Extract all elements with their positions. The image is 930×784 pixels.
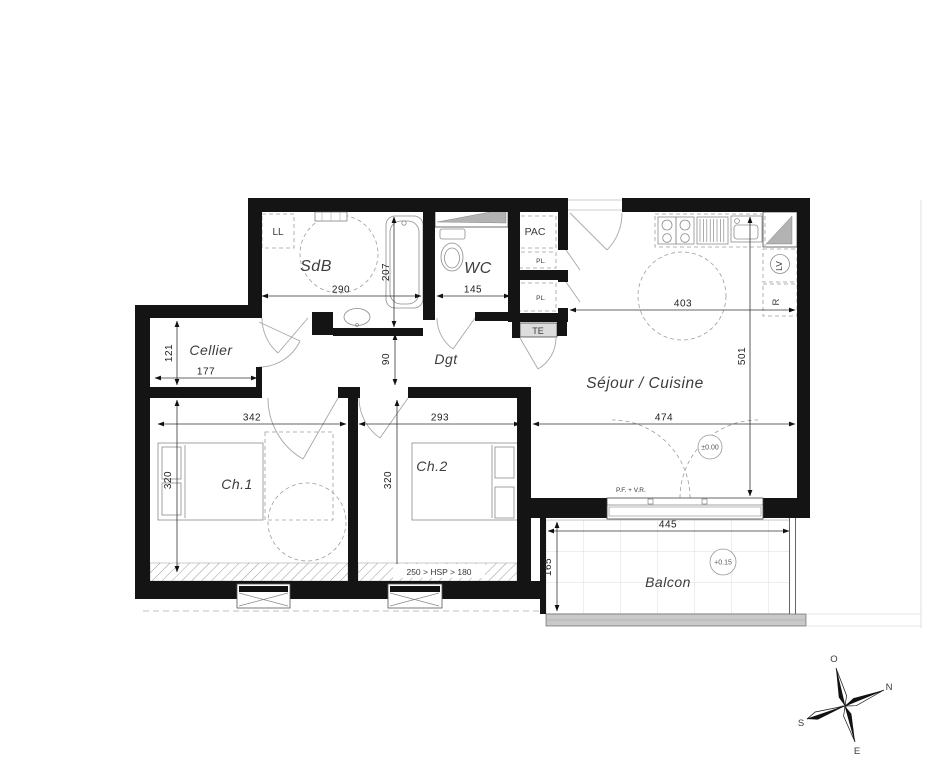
compass-south: S bbox=[798, 718, 804, 729]
dim-balcon-depth: 165 bbox=[543, 558, 554, 576]
floor-plan: 290 145 207 403 501 121 177 90 342 293 4… bbox=[0, 0, 930, 784]
room-label-ch1: Ch.1 bbox=[221, 476, 253, 492]
label-fridge: R bbox=[771, 298, 782, 305]
compass-north: N bbox=[886, 682, 893, 693]
dim-balcon-width: 445 bbox=[659, 520, 677, 531]
balcony-sliding-window bbox=[607, 498, 763, 519]
dim-wc-width: 145 bbox=[464, 285, 482, 296]
level-ground: ±0.00 bbox=[701, 445, 719, 452]
roof-window-ch2 bbox=[388, 584, 442, 608]
dim-cellier-width: 177 bbox=[197, 367, 215, 378]
dim-ch1-width: 342 bbox=[243, 413, 261, 424]
dim-kitchen-width: 403 bbox=[674, 299, 692, 310]
label-washing-machine: LL bbox=[272, 227, 284, 238]
dim-cellier-depth: 121 bbox=[164, 344, 175, 362]
dim-ch2-depth: 320 bbox=[383, 471, 394, 489]
label-pac: PAC bbox=[525, 226, 546, 238]
label-pl-lower: PL. bbox=[536, 295, 546, 302]
dim-sdb-width: 290 bbox=[332, 285, 350, 296]
room-label-ch2: Ch.2 bbox=[416, 458, 448, 474]
balcony-tiles bbox=[546, 520, 790, 614]
room-label-sdb: SdB bbox=[300, 258, 332, 275]
label-electrical-panel: TE bbox=[532, 326, 544, 336]
label-ceiling-height: 250 > HSP > 180 bbox=[406, 567, 471, 577]
dim-sejour-depth: 501 bbox=[737, 347, 748, 365]
room-label-wc: WC bbox=[464, 260, 492, 277]
label-window-type: P.F. + V.R. bbox=[616, 487, 646, 494]
dim-bath-length: 207 bbox=[381, 263, 392, 281]
compass-west: O bbox=[830, 654, 837, 665]
compass-east: E bbox=[854, 746, 860, 757]
roof-window-ch1 bbox=[237, 584, 290, 608]
dim-ch2-width: 293 bbox=[431, 413, 449, 424]
label-dishwasher: LV bbox=[774, 261, 784, 271]
dim-ch1-depth: 320 bbox=[163, 471, 174, 489]
dim-dgt-width: 90 bbox=[381, 353, 392, 365]
floor-plan-svg: 290 145 207 403 501 121 177 90 342 293 4… bbox=[0, 0, 930, 784]
level-balcony: +0.15 bbox=[714, 560, 732, 567]
room-label-cellier: Cellier bbox=[189, 342, 233, 358]
sdb-vent-window bbox=[315, 212, 347, 221]
room-label-sejour: Séjour / Cuisine bbox=[586, 375, 703, 392]
room-label-balcon: Balcon bbox=[645, 574, 691, 590]
room-label-dgt: Dgt bbox=[434, 351, 458, 367]
dim-sejour-width: 474 bbox=[655, 413, 673, 424]
label-pl-upper: PL. bbox=[536, 258, 546, 265]
